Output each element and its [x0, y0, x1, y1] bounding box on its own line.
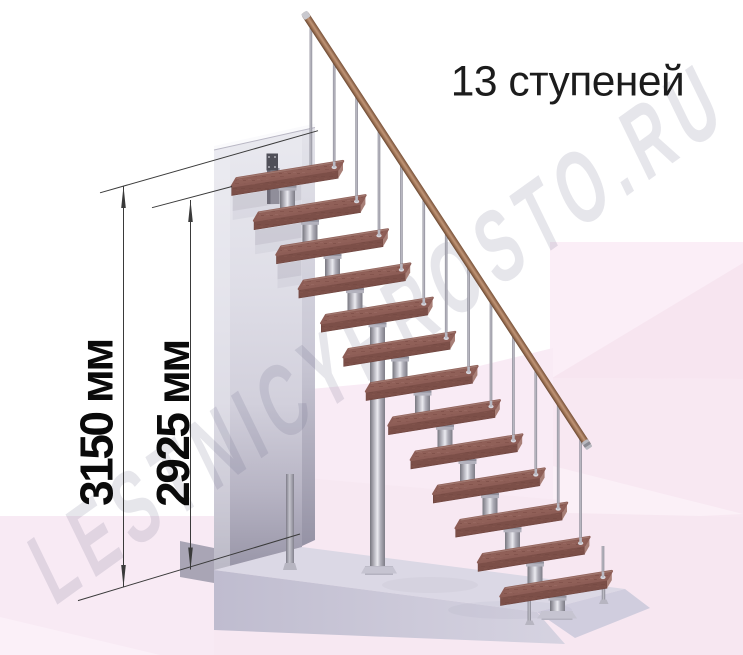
- svg-text:2925 мм: 2925 мм: [147, 341, 199, 507]
- svg-text:13 ступеней: 13 ступеней: [451, 59, 685, 106]
- svg-text:3150 мм: 3150 мм: [71, 340, 123, 506]
